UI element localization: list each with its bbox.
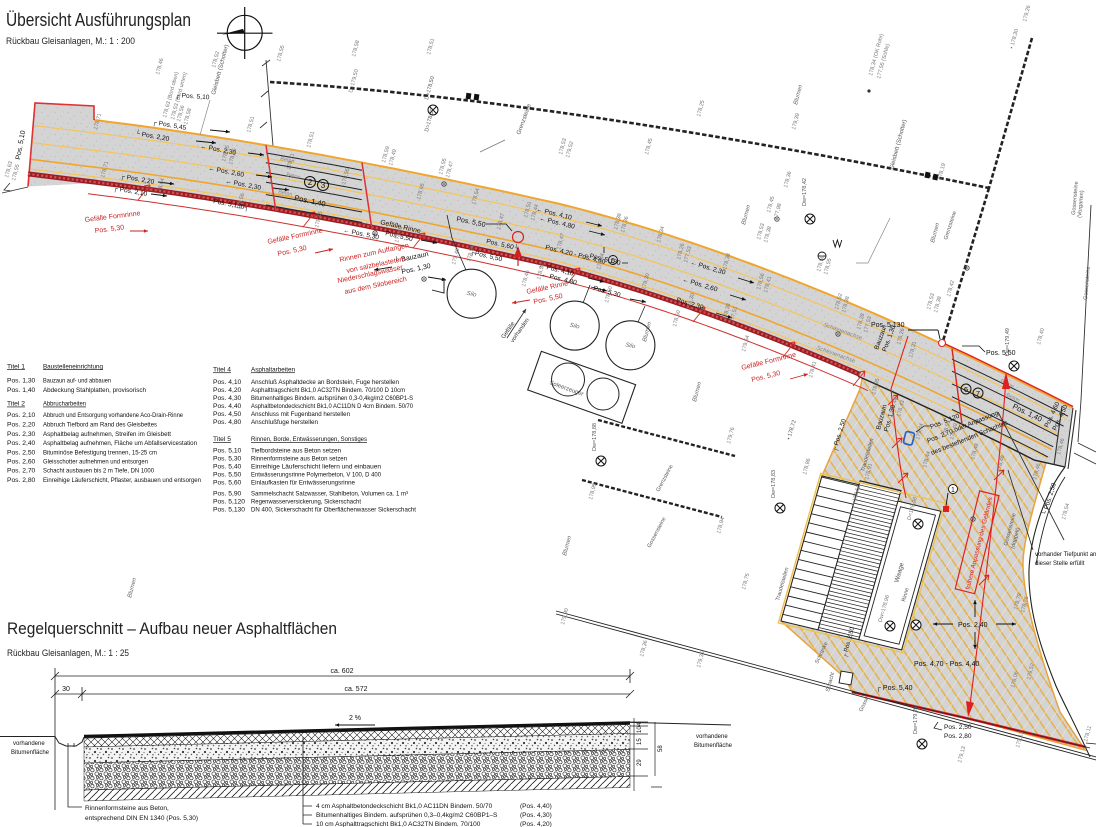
svg-text:Pos. 4,50: Pos. 4,50 [213, 411, 242, 418]
svg-text:Abbruch und Entsorgung vorhand: Abbruch und Entsorgung vorhandene Aco-Dr… [43, 412, 183, 419]
svg-text:Pos. 5,60: Pos. 5,60 [213, 479, 242, 486]
svg-text:Pos. 4,80: Pos. 4,80 [213, 419, 242, 426]
svg-text:Asphaltarbeiten: Asphaltarbeiten [251, 366, 295, 373]
svg-text:Pos. 1,40: Pos. 1,40 [7, 387, 36, 394]
svg-text:Pos. 2,40: Pos. 2,40 [7, 440, 36, 447]
svg-text:Titel 1: Titel 1 [7, 363, 25, 370]
svg-text:Pos. 5,50: Pos. 5,50 [213, 471, 242, 478]
svg-text:Pos. 5,50: Pos. 5,50 [986, 350, 1016, 357]
svg-text:Bitumenhaltiges Bindem. aufspr: Bitumenhaltiges Bindem. aufsprühen 0,3–0… [316, 812, 498, 819]
svg-text:Dw=178,88: Dw=178,88 [592, 423, 598, 451]
svg-text:Bitumenfläche: Bitumenfläche [11, 750, 50, 756]
svg-text:Asphalttragschicht Bk1,0 AC32T: Asphalttragschicht Bk1,0 AC32TN Bindem. … [251, 387, 405, 394]
svg-text:vorhander Tiefpunkt an: vorhander Tiefpunkt an [1035, 552, 1096, 558]
svg-text:Rückbau Gleisanlagen, M.: 1 :: Rückbau Gleisanlagen, M.: 1 : 200 [6, 36, 135, 47]
svg-text:Bitumenfläche: Bitumenfläche [694, 743, 733, 749]
svg-text:Titel 4: Titel 4 [213, 366, 231, 373]
svg-text:10 cm Asphalttragschicht Bk1,0: 10 cm Asphalttragschicht Bk1,0 AC32TN Bi… [316, 821, 481, 827]
svg-text:Pos. 1,30: Pos. 1,30 [7, 378, 36, 385]
svg-text:4 cm Asphaltbetondeckschicht B: 4 cm Asphaltbetondeckschicht Bk1,0 AC11D… [316, 803, 493, 810]
svg-text:Rinnenformsteine aus Beton set: Rinnenformsteine aus Beton setzen [251, 455, 347, 462]
svg-text:Einreihige Läuferschicht, Pfla: Einreihige Läuferschicht, Pflaster, ausb… [43, 477, 201, 484]
svg-text:Pos. 2,80: Pos. 2,80 [7, 477, 36, 484]
svg-text:Einlaufkasten für Entwässerung: Einlaufkasten für Entwässerungsrinne [251, 479, 355, 486]
svg-text:Bitumenhaltiges Bindem. aufspr: Bitumenhaltiges Bindem. aufsprühen 0,3-0… [251, 395, 413, 402]
svg-text:DN 400, Sickerschacht für Ober: DN 400, Sickerschacht für Oberflächenwas… [251, 507, 416, 514]
svg-text:6: 6 [964, 385, 968, 394]
svg-text:15: 15 [637, 738, 643, 745]
svg-text:vorhandene: vorhandene [13, 741, 45, 747]
svg-text:Pos. 4,40: Pos. 4,40 [213, 403, 242, 410]
svg-text:Anschluß Asphaltdecke an Bords: Anschluß Asphaltdecke an Bordstein, Fuge… [251, 379, 399, 386]
svg-text:Pos. 2,40: Pos. 2,40 [958, 622, 988, 629]
svg-text:Pos. 2,50: Pos. 2,50 [944, 724, 972, 731]
svg-text:Pos. 2,50: Pos. 2,50 [7, 449, 36, 456]
svg-text:Pos. 5,120: Pos. 5,120 [213, 499, 245, 506]
svg-text:Rinnenformsteine aus Beton,: Rinnenformsteine aus Beton, [85, 805, 169, 812]
svg-text:Einreihige Läuferschicht liefe: Einreihige Läuferschicht liefern und ein… [251, 463, 381, 470]
svg-text:Pos. 4,70 - Pos. 4,40: Pos. 4,70 - Pos. 4,40 [914, 661, 979, 668]
svg-text:entsprechend DIN EN 1340 (Pos.: entsprechend DIN EN 1340 (Pos. 5,30) [85, 815, 198, 822]
svg-text:Asphaltbelag aufnehmen, Fläche: Asphaltbelag aufnehmen, Fläche um Abfall… [43, 440, 197, 447]
svg-text:Pos. 2,20: Pos. 2,20 [7, 422, 36, 429]
svg-text:vorhandene: vorhandene [696, 734, 728, 740]
svg-text:3: 3 [321, 181, 326, 190]
svg-text:Pos. 4,10: Pos. 4,10 [213, 379, 242, 386]
svg-text:Pos. 5,40: Pos. 5,40 [213, 463, 242, 470]
svg-text:┌ Pos. 5,40: ┌ Pos. 5,40 [876, 685, 913, 692]
svg-text:Titel 5: Titel 5 [213, 436, 231, 443]
svg-text:(Pos. 4,40): (Pos. 4,40) [520, 803, 552, 810]
svg-text:1: 1 [951, 487, 955, 494]
svg-text:Regenwasserversickerung, Sicke: Regenwasserversickerung, Sickerschacht [251, 499, 361, 506]
svg-text:Übersicht Ausführungsplan: Übersicht Ausführungsplan [6, 9, 191, 30]
svg-text:Pos. 2,10: Pos. 2,10 [7, 412, 36, 419]
svg-text:Tiefbordsteine aus Beton setze: Tiefbordsteine aus Beton setzen [251, 448, 341, 455]
svg-text:Asphaltbetondeckschicht Bk1,0: Asphaltbetondeckschicht Bk1,0 AC11DN D 4… [251, 403, 413, 410]
svg-text:ca. 602: ca. 602 [331, 668, 354, 675]
svg-text:Rinnen, Borde, Entwässerungen,: Rinnen, Borde, Entwässerungen, Sonstiges [251, 436, 368, 443]
svg-text:Pos. 5,30: Pos. 5,30 [213, 455, 242, 462]
svg-text:dieser Stelle erfüllt: dieser Stelle erfüllt [1035, 561, 1085, 567]
svg-text:ca. 572: ca. 572 [345, 686, 368, 693]
svg-text:Pos. 2,30: Pos. 2,30 [7, 431, 36, 438]
svg-text:Schacht ausbauen bis 2 m Tiefe: Schacht ausbauen bis 2 m Tiefe, DN 1000 [43, 468, 154, 475]
svg-text:Asphaltbelag aufnehmen, Streif: Asphaltbelag aufnehmen, Streifen im Glei… [43, 431, 171, 438]
svg-text:2 %: 2 % [349, 715, 361, 722]
svg-text:Pos. 4,20: Pos. 4,20 [213, 387, 242, 394]
svg-text:Baustelleneinrichtung: Baustelleneinrichtung [43, 363, 103, 370]
svg-text:30: 30 [62, 686, 70, 693]
svg-text:Dw=179,20: Dw=179,20 [913, 706, 919, 734]
svg-text:Regelquerschnitt – Aufbau neue: Regelquerschnitt – Aufbau neuer Asphaltf… [7, 620, 337, 638]
svg-text:Pos. 2,70: Pos. 2,70 [7, 468, 36, 475]
svg-text:Anschluss mit Fugenband herste: Anschluss mit Fugenband herstellen [251, 411, 350, 418]
svg-text:(Pos. 4,30): (Pos. 4,30) [520, 812, 552, 819]
svg-text:Pos. 5,10: Pos. 5,10 [213, 448, 242, 455]
svg-text:Bauzaun auf- und abbauen: Bauzaun auf- und abbauen [43, 378, 111, 385]
svg-text:Bituminöse Befestigung trennen: Bituminöse Befestigung trennen, 15-25 cm [43, 449, 157, 456]
svg-text:Pos. 2,60: Pos. 2,60 [7, 459, 36, 466]
svg-text:7: 7 [976, 389, 980, 398]
svg-text:Gleisschotter aufnehmen und en: Gleisschotter aufnehmen und entsorgen [43, 459, 148, 466]
svg-text:Pos. 4,30: Pos. 4,30 [213, 395, 242, 402]
svg-text:Rückbau Gleisanlagen, M.: 1 :: Rückbau Gleisanlagen, M.: 1 : 25 [7, 648, 129, 658]
svg-text:Abdeckung Stahlplatten, provis: Abdeckung Stahlplatten, provisorisch [43, 387, 146, 394]
svg-text:Pos. 5,90: Pos. 5,90 [213, 491, 242, 498]
svg-text:(Pos. 4,20): (Pos. 4,20) [520, 821, 552, 827]
svg-text:58: 58 [658, 745, 664, 752]
svg-text:Titel 2: Titel 2 [7, 401, 25, 408]
svg-text:Abbruch Tiefbord am Rand des G: Abbruch Tiefbord am Rand des Gleisbettes [43, 422, 158, 429]
svg-text:Anschlußfuge herstellen: Anschlußfuge herstellen [251, 419, 318, 426]
svg-text:Sammelschacht Salzwasser, Stah: Sammelschacht Salzwasser, Stahlbeton, Vo… [251, 491, 409, 498]
svg-text:29: 29 [637, 759, 643, 766]
svg-text:Entwässerungsrinne Polymerbeto: Entwässerungsrinne Polymerbeton, V 100, … [251, 471, 381, 478]
svg-text:2: 2 [308, 178, 313, 187]
svg-text:Dw=178,83: Dw=178,83 [771, 470, 777, 498]
svg-text:Dw=178,42: Dw=178,42 [802, 178, 808, 206]
svg-text:Pos. 5,130: Pos. 5,130 [213, 507, 245, 514]
svg-text:10: 10 [637, 726, 643, 733]
svg-text:Pos. 2,80: Pos. 2,80 [944, 733, 972, 740]
svg-text:Abbrucharbeiten: Abbrucharbeiten [43, 401, 86, 408]
